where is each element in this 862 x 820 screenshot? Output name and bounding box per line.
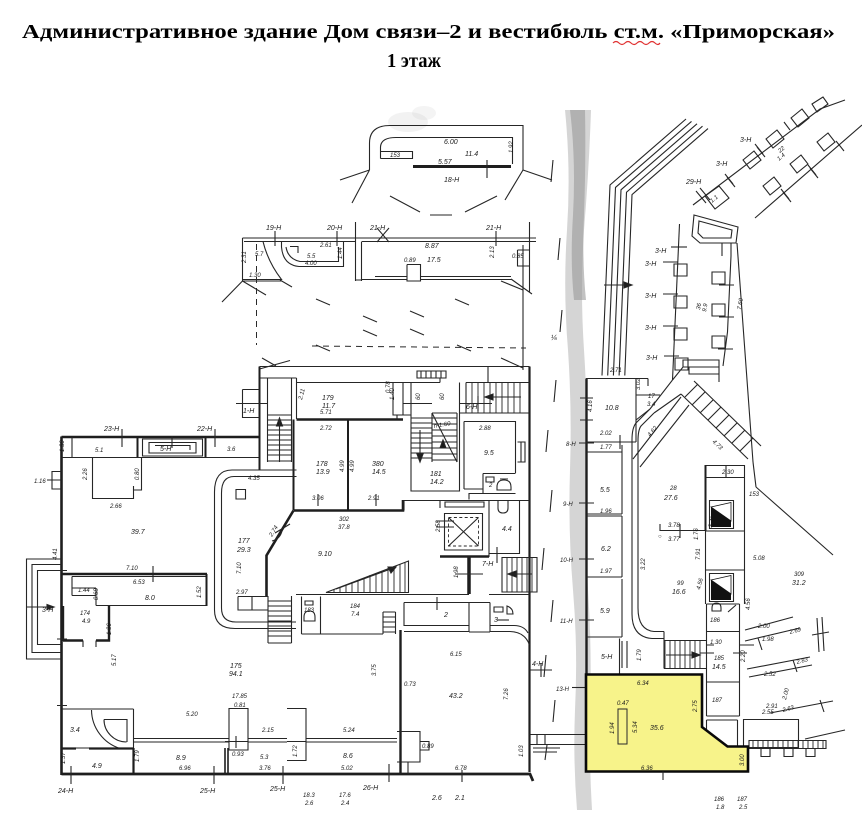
svg-text:5-Н: 5-Н	[601, 654, 613, 661]
svg-text:14.5: 14.5	[372, 469, 386, 476]
svg-text:27.6: 27.6	[663, 495, 678, 502]
svg-text:3-Н: 3-Н	[646, 355, 658, 362]
svg-text:25-Н: 25-Н	[199, 788, 216, 795]
svg-text:3-Н: 3-Н	[655, 248, 667, 255]
svg-text:174: 174	[80, 611, 91, 617]
svg-text:2.91: 2.91	[765, 704, 778, 710]
svg-text:11.4: 11.4	[465, 151, 478, 158]
svg-text:23-Н: 23-Н	[103, 426, 120, 433]
svg-text:5.02: 5.02	[341, 766, 353, 772]
svg-text:2.13: 2.13	[490, 246, 496, 259]
svg-text:1.96: 1.96	[600, 509, 612, 515]
svg-text:5.71: 5.71	[320, 410, 332, 416]
svg-text:29.3: 29.3	[236, 547, 251, 554]
svg-text:13.9: 13.9	[316, 469, 330, 476]
svg-text:13-Н: 13-Н	[556, 687, 570, 693]
svg-text:8.87: 8.87	[425, 243, 440, 250]
svg-text:1.30: 1.30	[249, 273, 261, 279]
svg-text:6.15: 6.15	[450, 652, 462, 658]
svg-text:4.00: 4.00	[305, 261, 317, 267]
svg-text:6.53: 6.53	[133, 580, 145, 586]
svg-text:2.61: 2.61	[319, 243, 332, 249]
svg-text:94.1: 94.1	[229, 671, 243, 678]
svg-text:184: 184	[350, 604, 361, 610]
svg-text:2.5: 2.5	[738, 805, 748, 811]
svg-text:9.10: 9.10	[318, 551, 332, 558]
svg-text:○: ○	[658, 534, 662, 540]
svg-text:21-Н: 21-Н	[369, 225, 386, 232]
svg-text:6.96: 6.96	[179, 766, 191, 772]
svg-text:181: 181	[430, 471, 442, 478]
svg-text:186: 186	[714, 797, 725, 803]
svg-text:7-Н: 7-Н	[482, 561, 494, 568]
svg-text:1.8: 1.8	[716, 805, 725, 811]
svg-text:178: 178	[316, 461, 328, 468]
svg-text:1.16: 1.16	[34, 479, 46, 485]
svg-text:3.4: 3.4	[70, 727, 80, 734]
svg-text:28: 28	[669, 486, 677, 492]
svg-text:187: 187	[737, 797, 748, 803]
svg-text:1.44: 1.44	[78, 588, 90, 594]
svg-text:2.6: 2.6	[304, 801, 314, 807]
svg-text:1.36: 1.36	[107, 623, 113, 635]
svg-text:179: 179	[322, 395, 334, 402]
svg-text:1.30: 1.30	[710, 640, 722, 646]
svg-text:7.10: 7.10	[237, 562, 243, 574]
svg-text:6.78: 6.78	[455, 766, 467, 772]
svg-text:4-Н: 4-Н	[532, 661, 544, 668]
svg-text:153: 153	[749, 492, 760, 498]
svg-text:175: 175	[230, 663, 242, 670]
svg-text:5.20: 5.20	[186, 712, 198, 718]
svg-text:3-Н: 3-Н	[716, 161, 728, 168]
svg-text:186: 186	[710, 618, 721, 624]
svg-text:3-Н: 3-Н	[740, 137, 752, 144]
svg-text:2.1: 2.1	[454, 795, 465, 802]
svg-text:309: 309	[794, 572, 805, 578]
svg-text:4.99: 4.99	[350, 460, 356, 472]
svg-text:1-Н: 1-Н	[243, 408, 255, 415]
svg-text:5.08: 5.08	[753, 556, 765, 562]
svg-text:1.03: 1.03	[519, 745, 525, 757]
svg-text:177: 177	[238, 538, 251, 545]
svg-text:183: 183	[304, 608, 315, 614]
svg-text:14.2: 14.2	[430, 479, 444, 486]
svg-text:17: 17	[648, 394, 655, 400]
svg-text:1.77: 1.77	[600, 445, 612, 451]
svg-text:60: 60	[416, 393, 422, 400]
svg-text:2.72: 2.72	[319, 426, 332, 432]
svg-text:11.7: 11.7	[322, 403, 336, 410]
svg-text:2.58: 2.58	[436, 520, 442, 533]
svg-text:1 этаж: 1 этаж	[387, 51, 442, 72]
svg-text:2.00: 2.00	[757, 624, 770, 630]
svg-text:6.34: 6.34	[637, 681, 649, 687]
svg-text:1.40: 1.40	[390, 388, 396, 400]
svg-text:2.91: 2.91	[367, 496, 380, 502]
svg-text:7.91: 7.91	[696, 548, 702, 560]
svg-text:6.36: 6.36	[641, 766, 653, 772]
svg-text:5.3: 5.3	[260, 755, 269, 761]
svg-text:43.2: 43.2	[449, 693, 463, 700]
svg-text:2: 2	[443, 612, 448, 619]
svg-text:3.75: 3.75	[372, 664, 378, 676]
svg-text:25-Н: 25-Н	[269, 786, 286, 793]
svg-text:8-Н: 8-Н	[566, 442, 576, 448]
svg-text:2.26: 2.26	[83, 468, 89, 481]
svg-text:6.00: 6.00	[444, 139, 458, 146]
svg-text:2.66: 2.66	[109, 504, 122, 510]
svg-text:10.8: 10.8	[605, 405, 619, 412]
svg-text:5.5: 5.5	[600, 487, 610, 494]
svg-text:185: 185	[714, 656, 725, 662]
svg-text:17.5: 17.5	[427, 257, 441, 264]
svg-text:31.2: 31.2	[792, 580, 806, 587]
svg-text:3-Н: 3-Н	[42, 607, 54, 614]
svg-text:0.68: 0.68	[94, 588, 100, 600]
svg-text:3-Н: 3-Н	[645, 261, 657, 268]
svg-text:4.56: 4.56	[746, 598, 752, 610]
svg-text:10-Н: 10-Н	[560, 558, 574, 564]
svg-text:5.24: 5.24	[343, 728, 355, 734]
svg-text:8.6: 8.6	[343, 753, 353, 760]
svg-text:2.97: 2.97	[235, 590, 248, 596]
svg-text:3.78: 3.78	[668, 523, 680, 529]
svg-text:24-Н: 24-Н	[57, 788, 74, 795]
svg-text:2.31: 2.31	[242, 251, 248, 264]
svg-text:5.1: 5.1	[95, 448, 103, 454]
svg-text:5-Н: 5-Н	[160, 446, 172, 453]
svg-text:7.26: 7.26	[504, 688, 510, 700]
svg-text:18-Н: 18-Н	[444, 177, 460, 184]
svg-text:1.52: 1.52	[197, 586, 203, 598]
svg-text:1.79: 1.79	[637, 649, 643, 661]
svg-text:3-Н: 3-Н	[645, 293, 657, 300]
svg-text:21-Н: 21-Н	[485, 225, 502, 232]
svg-text:1.94: 1.94	[610, 722, 616, 734]
svg-text:7.4: 7.4	[351, 612, 360, 618]
svg-text:1.72: 1.72	[293, 745, 299, 757]
svg-text:18.3: 18.3	[303, 793, 315, 799]
svg-text:2.30: 2.30	[721, 470, 734, 476]
svg-text:153: 153	[390, 153, 401, 159]
svg-text:3.02: 3.02	[636, 378, 642, 390]
svg-text:4.35: 4.35	[248, 476, 260, 482]
svg-text:99: 99	[677, 581, 684, 587]
svg-text:1.37: 1.37	[61, 752, 67, 764]
svg-text:5.17: 5.17	[112, 654, 118, 666]
svg-text:Административное здание Дом св: Административное здание Дом связи–2 и ве…	[22, 22, 835, 43]
svg-text:2.75: 2.75	[693, 700, 699, 713]
svg-text:1.92: 1.92	[509, 141, 515, 153]
svg-text:14.5: 14.5	[712, 664, 726, 671]
svg-text:2.4: 2.4	[340, 801, 350, 807]
svg-text:5.34: 5.34	[633, 721, 639, 733]
svg-text:8.0: 8.0	[145, 595, 155, 602]
svg-text:7.10: 7.10	[126, 566, 138, 572]
svg-text:19-Н: 19-Н	[266, 225, 282, 232]
svg-text:4.9: 4.9	[92, 763, 102, 770]
svg-text:29-Н: 29-Н	[685, 179, 702, 186]
svg-text:0.47: 0.47	[617, 701, 629, 707]
svg-text:9-Н: 9-Н	[563, 502, 573, 508]
svg-text:3-Н: 3-Н	[645, 325, 657, 332]
svg-text:3.22: 3.22	[641, 558, 647, 570]
svg-text:2.02: 2.02	[599, 431, 612, 437]
svg-text:0.80: 0.80	[135, 468, 141, 480]
svg-text:1.30: 1.30	[60, 440, 66, 452]
svg-text:5.9: 5.9	[600, 608, 610, 615]
svg-text:26-Н: 26-Н	[362, 785, 379, 792]
svg-text:0.89: 0.89	[422, 744, 434, 750]
svg-text:20-Н: 20-Н	[326, 225, 343, 232]
svg-text:60: 60	[440, 393, 446, 400]
svg-text:5.57: 5.57	[438, 159, 453, 166]
svg-text:3.6: 3.6	[227, 447, 236, 453]
svg-text:2.15: 2.15	[261, 728, 274, 734]
svg-text:0.89: 0.89	[404, 258, 416, 264]
svg-text:5.5: 5.5	[307, 254, 316, 260]
svg-text:0.93: 0.93	[232, 752, 244, 758]
svg-text:0.73: 0.73	[404, 682, 416, 688]
svg-text:4.16: 4.16	[588, 400, 594, 412]
svg-text:4.4: 4.4	[502, 526, 512, 533]
svg-text:1.98: 1.98	[454, 566, 460, 578]
svg-text:380: 380	[372, 461, 384, 468]
svg-text:1.79: 1.79	[135, 750, 141, 762]
svg-text:4.99: 4.99	[340, 460, 346, 472]
svg-text:22-Н: 22-Н	[196, 426, 213, 433]
svg-text:9.5: 9.5	[484, 450, 494, 457]
svg-text:3.00: 3.00	[740, 754, 746, 766]
svg-text:2: 2	[488, 483, 493, 489]
svg-text:1.76: 1.76	[694, 528, 700, 540]
svg-text:39.7: 39.7	[131, 529, 146, 536]
svg-text:3.76: 3.76	[259, 766, 271, 772]
svg-text:37.8: 37.8	[338, 525, 350, 531]
svg-text:17.85: 17.85	[232, 694, 248, 700]
svg-text:1.97: 1.97	[600, 569, 612, 575]
svg-text:6.2: 6.2	[601, 546, 611, 553]
svg-text:35.6: 35.6	[650, 725, 664, 732]
svg-text:1.98: 1.98	[762, 637, 774, 643]
svg-text:1.44: 1.44	[338, 247, 344, 259]
svg-text:187: 187	[712, 698, 723, 704]
svg-text:16.6: 16.6	[672, 589, 686, 596]
svg-text:4.41: 4.41	[53, 548, 59, 560]
svg-text:3: 3	[494, 617, 498, 624]
svg-text:3.77: 3.77	[668, 537, 680, 543]
svg-text:2.71: 2.71	[609, 368, 622, 374]
svg-text:2.20: 2.20	[741, 650, 747, 663]
svg-text:11-Н: 11-Н	[560, 619, 573, 625]
svg-text:2.88: 2.88	[478, 426, 491, 432]
svg-text:17.6: 17.6	[339, 793, 351, 799]
svg-text:8.9: 8.9	[176, 755, 186, 762]
svg-text:4.9: 4.9	[82, 619, 91, 625]
svg-text:302: 302	[339, 517, 350, 523]
svg-text:2.6: 2.6	[431, 795, 442, 802]
